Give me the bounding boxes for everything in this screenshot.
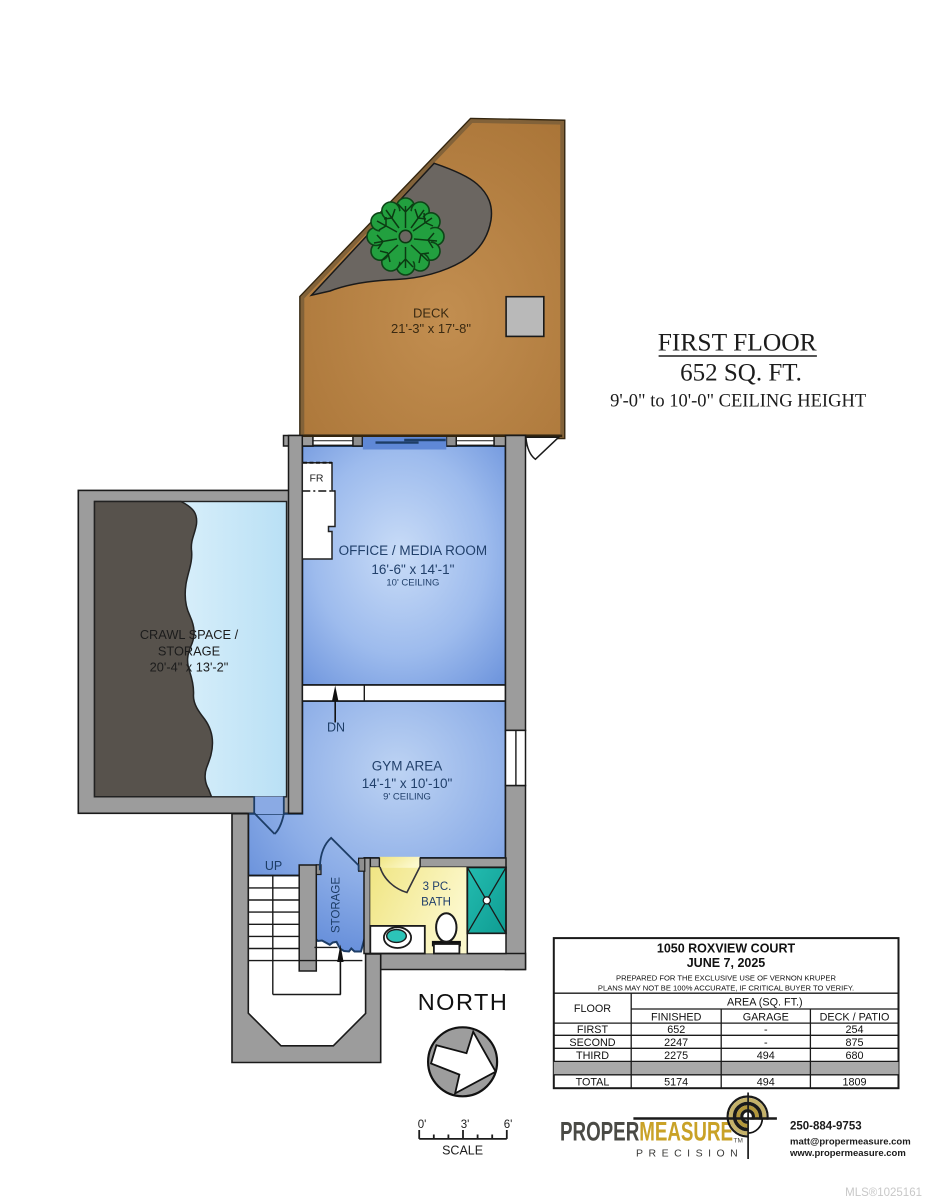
svg-text:SCALE: SCALE (442, 1144, 483, 1158)
svg-text:GARAGE: GARAGE (743, 1012, 789, 1024)
svg-text:-: - (764, 1037, 768, 1049)
svg-text:20'-4" x 13'-2": 20'-4" x 13'-2" (150, 660, 229, 675)
svg-text:AREA (SQ. FT.): AREA (SQ. FT.) (727, 997, 803, 1009)
svg-text:5174: 5174 (664, 1077, 688, 1089)
svg-text:MEASURE: MEASURE (639, 1116, 733, 1146)
svg-text:FIRST: FIRST (577, 1024, 609, 1036)
svg-text:254: 254 (845, 1024, 863, 1036)
svg-text:STORAGE: STORAGE (331, 877, 343, 933)
svg-text:www.propermeasure.com: www.propermeasure.com (789, 1148, 906, 1159)
svg-text:NORTH: NORTH (418, 989, 509, 1015)
svg-text:SECOND: SECOND (569, 1037, 615, 1049)
svg-text:3 PC.: 3 PC. (423, 881, 452, 893)
svg-text:CRAWL SPACE /: CRAWL SPACE / (140, 627, 239, 642)
svg-text:STORAGE: STORAGE (158, 644, 220, 659)
svg-text:OFFICE / MEDIA ROOM: OFFICE / MEDIA ROOM (339, 543, 488, 558)
svg-text:-: - (764, 1024, 768, 1036)
svg-text:2247: 2247 (664, 1037, 688, 1049)
svg-text:DECK / PATIO: DECK / PATIO (820, 1012, 890, 1024)
svg-text:21'-3" x 17'-8": 21'-3" x 17'-8" (391, 321, 471, 336)
svg-text:6': 6' (504, 1119, 513, 1131)
svg-text:TOTAL: TOTAL (576, 1077, 610, 1089)
svg-text:FLOOR: FLOOR (574, 1003, 611, 1015)
svg-text:UP: UP (265, 859, 282, 873)
svg-text:THIRD: THIRD (576, 1050, 609, 1062)
svg-text:GYM AREA: GYM AREA (372, 759, 443, 774)
svg-text:matt@propermeasure.com: matt@propermeasure.com (790, 1137, 911, 1148)
svg-text:652: 652 (667, 1024, 685, 1036)
svg-text:0': 0' (418, 1119, 427, 1131)
svg-text:9'-0" to 10'-0" CEILING HEIGHT: 9'-0" to 10'-0" CEILING HEIGHT (610, 392, 866, 412)
svg-text:16'-6" x 14'-1": 16'-6" x 14'-1" (371, 562, 454, 577)
svg-text:PROPER: PROPER (560, 1116, 639, 1146)
svg-text:FINISHED: FINISHED (651, 1012, 702, 1024)
svg-text:9' CEILING: 9' CEILING (383, 792, 431, 803)
svg-text:14'-1" x 10'-10": 14'-1" x 10'-10" (362, 776, 453, 791)
svg-text:FR: FR (310, 473, 324, 485)
svg-text:2275: 2275 (664, 1050, 688, 1062)
svg-text:MLS®1025161: MLS®1025161 (845, 1187, 922, 1199)
svg-text:494: 494 (757, 1050, 775, 1062)
svg-text:FIRST FLOOR: FIRST FLOOR (658, 328, 817, 357)
svg-text:494: 494 (757, 1077, 775, 1089)
svg-text:DN: DN (327, 721, 345, 735)
svg-text:PRECISION: PRECISION (636, 1148, 743, 1160)
svg-text:PREPARED FOR THE EXCLUSIVE USE: PREPARED FOR THE EXCLUSIVE USE OF VERNON… (616, 974, 836, 983)
svg-text:JUNE 7, 2025: JUNE 7, 2025 (687, 956, 766, 970)
svg-text:PLANS MAY NOT BE 100% ACCURATE: PLANS MAY NOT BE 100% ACCURATE, IF CRITI… (598, 984, 854, 993)
svg-text:1809: 1809 (842, 1077, 866, 1089)
svg-text:250-884-9753: 250-884-9753 (790, 1121, 862, 1133)
svg-text:BATH: BATH (421, 897, 451, 909)
svg-text:875: 875 (845, 1037, 863, 1049)
svg-text:1050 ROXVIEW COURT: 1050 ROXVIEW COURT (657, 942, 796, 956)
svg-text:10' CEILING: 10' CEILING (386, 578, 439, 589)
svg-text:DECK: DECK (413, 306, 449, 321)
svg-text:TM: TM (734, 1138, 743, 1145)
svg-text:652 SQ. FT.: 652 SQ. FT. (680, 359, 802, 386)
svg-text:3': 3' (461, 1119, 470, 1131)
svg-text:680: 680 (845, 1050, 863, 1062)
